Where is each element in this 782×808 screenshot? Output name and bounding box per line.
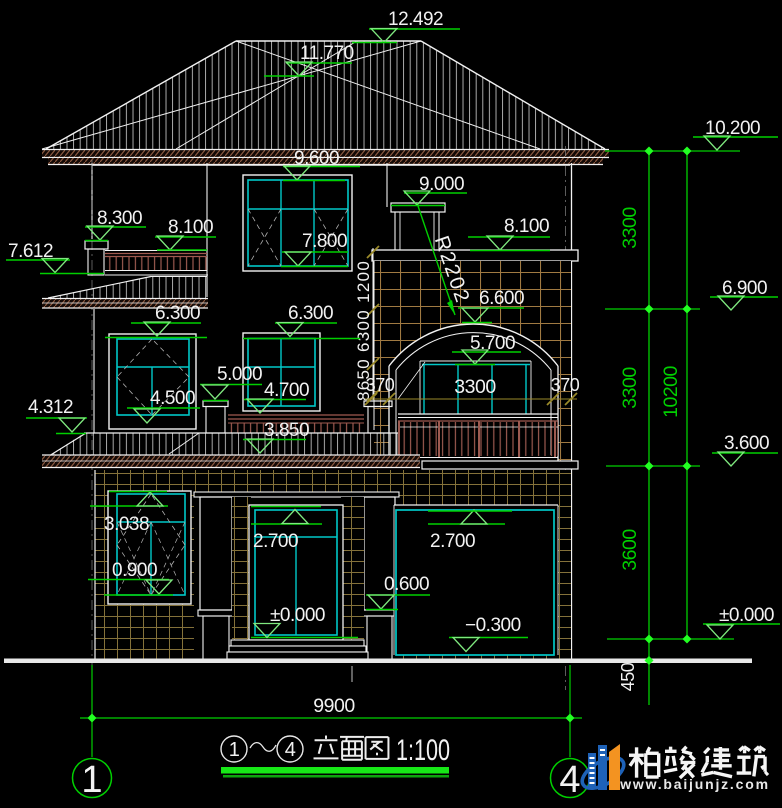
svg-text:4.700: 4.700 <box>264 380 309 401</box>
svg-text:6.300: 6.300 <box>288 303 333 324</box>
svg-text:1:100: 1:100 <box>396 734 450 767</box>
svg-text:10200: 10200 <box>660 365 682 417</box>
svg-text:2.700: 2.700 <box>430 531 475 552</box>
svg-text:10.200: 10.200 <box>705 118 760 139</box>
svg-text:7.612: 7.612 <box>8 241 53 262</box>
svg-text:4: 4 <box>285 739 296 761</box>
svg-text:1: 1 <box>229 739 240 761</box>
svg-text:370: 370 <box>551 375 580 395</box>
svg-text:3.600: 3.600 <box>724 433 769 454</box>
svg-text:8.300: 8.300 <box>97 208 142 229</box>
svg-text:3.850: 3.850 <box>264 420 309 441</box>
svg-text:8.100: 8.100 <box>168 217 213 238</box>
svg-text:0.900: 0.900 <box>112 560 157 581</box>
svg-text:370: 370 <box>366 375 395 395</box>
svg-text:9.600: 9.600 <box>294 148 339 169</box>
svg-text:11.770: 11.770 <box>300 43 354 64</box>
svg-text:3600: 3600 <box>619 529 641 571</box>
svg-text:0.600: 0.600 <box>384 574 429 595</box>
svg-text:6.900: 6.900 <box>722 278 767 299</box>
svg-text:4.312: 4.312 <box>28 397 73 418</box>
svg-text:−0.300: −0.300 <box>465 615 521 636</box>
svg-text:9.000: 9.000 <box>419 174 464 195</box>
svg-text:4: 4 <box>559 759 580 801</box>
svg-text:6.300: 6.300 <box>155 303 200 324</box>
svg-text:8.100: 8.100 <box>504 216 549 237</box>
svg-text:2.700: 2.700 <box>253 531 298 552</box>
svg-text:9900: 9900 <box>313 695 355 717</box>
svg-text:450: 450 <box>618 662 638 691</box>
svg-text:1: 1 <box>81 759 102 801</box>
svg-text:4.500: 4.500 <box>150 388 195 409</box>
svg-text:12.492: 12.492 <box>388 9 443 30</box>
svg-text:6.600: 6.600 <box>479 288 524 309</box>
svg-text:±0.000: ±0.000 <box>719 605 774 626</box>
svg-text:±0.000: ±0.000 <box>270 605 325 626</box>
svg-text:3.038: 3.038 <box>104 514 149 535</box>
svg-text:3300: 3300 <box>619 207 641 249</box>
svg-text:5.000: 5.000 <box>217 364 262 385</box>
svg-text:3300: 3300 <box>454 376 496 398</box>
svg-text:5.700: 5.700 <box>470 333 515 354</box>
svg-text:7.800: 7.800 <box>302 231 347 252</box>
svg-text:3300: 3300 <box>619 367 641 409</box>
svg-text:www.baijunjz.com: www.baijunjz.com <box>619 776 770 792</box>
